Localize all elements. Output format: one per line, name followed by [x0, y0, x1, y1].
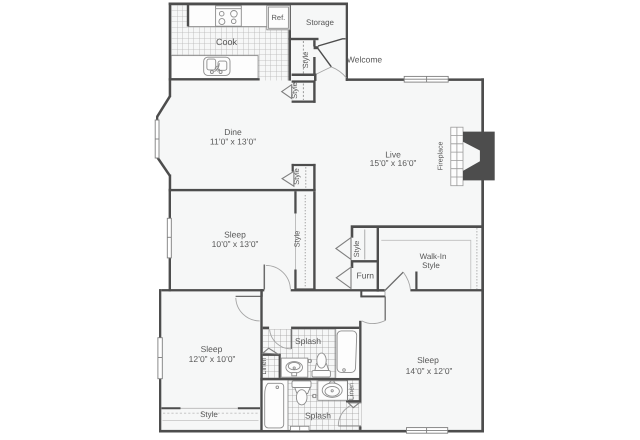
- svg-text:Style: Style: [422, 261, 440, 270]
- svg-text:Sleep: Sleep: [201, 344, 223, 354]
- svg-text:Style: Style: [301, 52, 310, 69]
- svg-text:Dine: Dine: [224, 127, 242, 137]
- svg-text:Linen: Linen: [260, 357, 268, 374]
- svg-text:Ref.: Ref.: [272, 13, 286, 22]
- svg-text:12’0” x 10’0”: 12’0” x 10’0”: [189, 354, 236, 364]
- svg-text:Splash: Splash: [295, 336, 321, 346]
- svg-text:Sleep: Sleep: [417, 355, 439, 365]
- svg-text:Style: Style: [292, 168, 301, 185]
- svg-text:Style: Style: [293, 231, 302, 248]
- svg-text:Storage: Storage: [306, 18, 335, 27]
- svg-text:Walk-In: Walk-In: [420, 252, 447, 261]
- svg-text:Furn: Furn: [357, 271, 375, 281]
- svg-text:14’0” x 12’0”: 14’0” x 12’0”: [406, 366, 453, 376]
- svg-text:15’0” x 16’0”: 15’0” x 16’0”: [370, 158, 417, 168]
- svg-text:Style: Style: [352, 241, 361, 258]
- svg-text:Fireplace: Fireplace: [437, 142, 445, 171]
- svg-text:Sleep: Sleep: [224, 230, 246, 240]
- svg-text:Splash: Splash: [305, 410, 331, 420]
- svg-text:Style: Style: [200, 410, 218, 419]
- svg-text:Welcome: Welcome: [347, 55, 383, 65]
- svg-text:Linen: Linen: [348, 383, 356, 400]
- svg-text:11’0” x 13’0”: 11’0” x 13’0”: [210, 137, 256, 147]
- svg-text:Style: Style: [290, 82, 299, 99]
- svg-text:Cook: Cook: [216, 37, 238, 47]
- svg-text:10’0” x 13’0”: 10’0” x 13’0”: [212, 239, 259, 249]
